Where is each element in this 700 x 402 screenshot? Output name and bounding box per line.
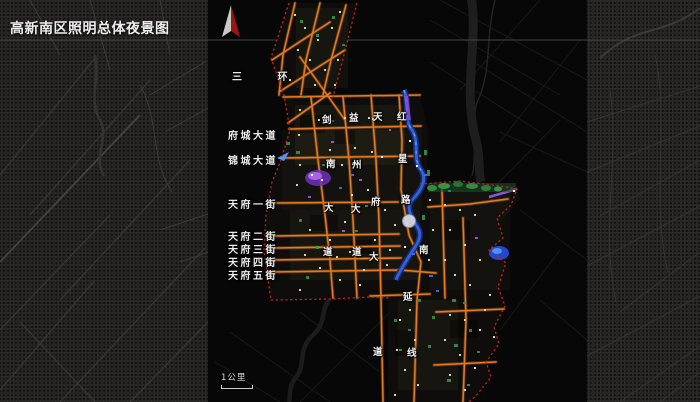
road-label-char: 大: [324, 200, 334, 214]
street-label-fucheng-avenue: 府城大道: [228, 127, 278, 142]
map-graphic: [0, 0, 700, 402]
road-label-char: 路: [401, 192, 411, 206]
street-label-jincheng-avenue: 锦城大道: [228, 152, 278, 167]
road-label-char: 延: [403, 289, 413, 303]
road-label-char: 天: [373, 109, 383, 123]
road-label-char: 益: [349, 110, 359, 124]
road-label-char: 州: [352, 157, 362, 171]
scale-bar-label: 1公里: [221, 371, 255, 383]
compass-north-arrow-icon: [219, 3, 243, 43]
road-label-char: 道: [373, 344, 383, 358]
scale-bar-line: [221, 385, 253, 389]
slide-night-lighting-map: 高新南区照明总体夜景图 三 环 府城大道 锦城大道 天府一街 天府二街 天府三街…: [0, 0, 700, 402]
road-label-char: 星: [398, 151, 408, 165]
page-title: 高新南区照明总体夜景图: [10, 18, 170, 38]
road-label-char: 道: [352, 244, 362, 258]
road-label-char: 剑: [322, 112, 332, 126]
scale-bar: 1公里: [221, 371, 255, 389]
street-label-third-ring: 三 环: [232, 68, 303, 83]
road-label-char: 红: [397, 109, 407, 123]
road-label-char: 南: [419, 242, 429, 256]
road-label-char: 线: [407, 345, 417, 359]
road-label-char: 道: [323, 244, 333, 258]
road-label-char: 府: [371, 194, 381, 208]
right-basemap-streets: [587, 8, 700, 402]
road-label-char: 南: [326, 156, 336, 170]
road-label-char: 大: [369, 249, 379, 263]
road-label-char: 大: [351, 201, 361, 215]
street-label-tianfu-5th: 天府五街: [228, 267, 278, 282]
left-basemap-streets: [0, 0, 208, 402]
street-label-tianfu-1st: 天府一街: [228, 196, 278, 211]
